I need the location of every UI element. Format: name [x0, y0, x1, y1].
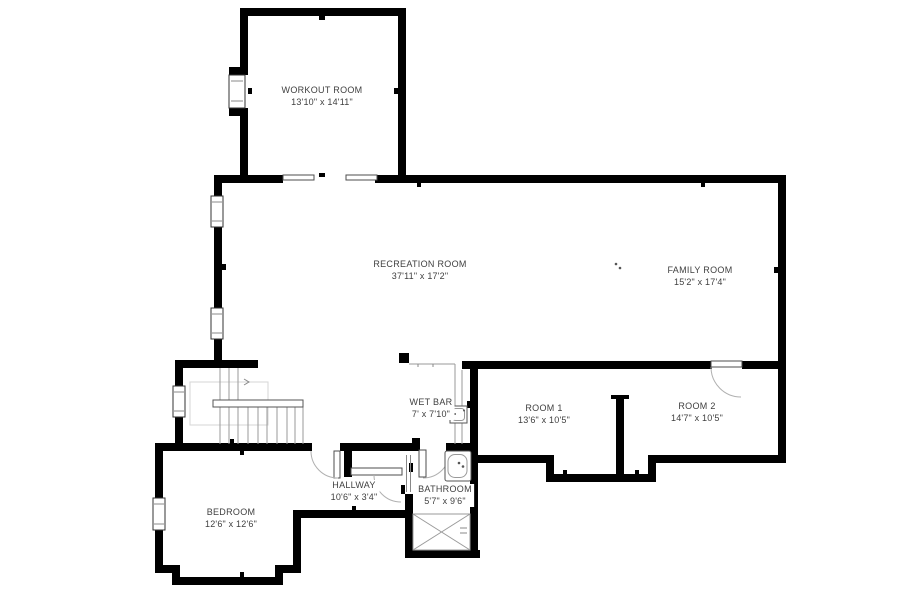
shower — [413, 514, 470, 550]
room-name: ROOM 2 — [671, 401, 723, 413]
room-name: WET BAR — [410, 397, 453, 409]
room-name: ROOM 1 — [518, 403, 570, 415]
room-dims: 37'11" x 17'2" — [373, 271, 466, 283]
pocket-doors-workout-entry — [283, 175, 377, 180]
room-dims: 15'2" x 17'4" — [668, 277, 733, 289]
room-dims: 13'10" x 14'11" — [282, 97, 363, 109]
room-dims: 5'7" x 9'6" — [418, 496, 472, 508]
stair-railing — [213, 400, 303, 407]
ceiling-marker-dot — [615, 263, 618, 266]
room-name: WORKOUT ROOM — [282, 85, 363, 97]
window-recreation-lower — [211, 308, 223, 339]
bathtub — [445, 451, 471, 481]
floor-plan-canvas — [0, 0, 900, 600]
windows — [153, 75, 245, 530]
room-name: RECREATION ROOM — [373, 259, 466, 271]
room-label-room-2: ROOM 2 14'7" x 10'5" — [669, 401, 725, 424]
room-label-workout-room: WORKOUT ROOM 13'10" x 14'11" — [280, 85, 365, 108]
window-stairwell — [173, 386, 185, 417]
room-dims: 14'7" x 10'5" — [671, 413, 723, 425]
room-dims: 7' x 7'10" — [410, 409, 453, 421]
room-label-bedroom: BEDROOM 12'6" x 12'6" — [203, 507, 259, 530]
window-recreation-upper — [211, 196, 223, 227]
room-label-bathroom: BATHROOM 5'7" x 9'6" — [416, 484, 474, 507]
room-label-family-room: FAMILY ROOM 15'2" x 17'4" — [666, 265, 735, 288]
room-dims: 12'6" x 12'6" — [205, 519, 257, 531]
staircase — [190, 368, 303, 444]
room-label-hallway: HALLWAY 10'6" x 3'4" — [329, 480, 380, 503]
room-name: FAMILY ROOM — [668, 265, 733, 277]
door-room-2 — [711, 361, 742, 397]
floor-plan: WORKOUT ROOM 13'10" x 14'11" RECREATION … — [0, 0, 900, 600]
room-label-wet-bar: WET BAR 7' x 7'10" — [408, 397, 455, 420]
room-dims: 10'6" x 3'4" — [331, 492, 378, 504]
door-bedroom — [311, 451, 340, 478]
room-name: BEDROOM — [205, 507, 257, 519]
room-label-recreation-room: RECREATION ROOM 37'11" x 17'2" — [371, 259, 468, 282]
room-name: BATHROOM — [418, 484, 472, 496]
pocket-door-hallway — [407, 455, 411, 492]
window-workout-room — [229, 75, 245, 108]
room-dims: 13'6" x 10'5" — [518, 415, 570, 427]
window-bedroom — [153, 498, 165, 530]
room-label-room-1: ROOM 1 13'6" x 10'5" — [516, 403, 572, 426]
room-name: HALLWAY — [331, 480, 378, 492]
ceiling-marker-dot — [619, 267, 622, 270]
